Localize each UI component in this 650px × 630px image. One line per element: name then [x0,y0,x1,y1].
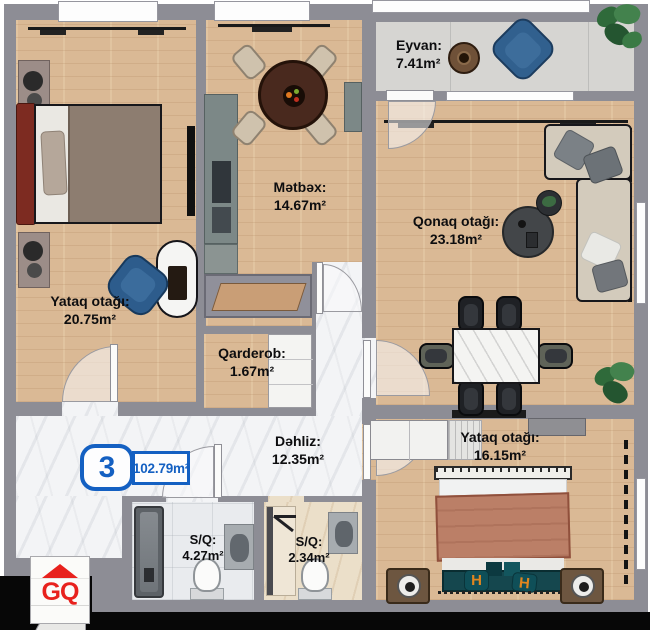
room-area: 2.34m² [264,550,354,566]
bathroom-1-toilet [188,558,226,600]
room-name: Qonaq otağı: [384,212,528,230]
bed-fringe [438,591,568,594]
bathroom-2-door-opening [268,496,304,502]
bedroom-1-door-opening [62,402,118,416]
balcony-seam [588,22,589,91]
appliance-icon [212,161,231,203]
room-area: 16.15m² [428,446,572,464]
lamp-dot [405,582,415,592]
fruit-dot [286,92,292,98]
balcony-rail-window [372,0,590,13]
living-right-window [636,202,646,304]
room-name: Dəhliz: [236,432,360,450]
room-area: 14.67m² [238,196,362,214]
living-plant-icon [592,362,638,410]
kitchen-counter-right [344,82,362,132]
kitchen-hall-door-leaf [316,262,323,314]
room-name: S/Q: [158,532,248,548]
room-name: Yataq otağı: [428,428,572,446]
cabinet-divider [409,421,410,461]
bed-pillow [40,130,67,195]
living-door-leaf [363,340,371,398]
room-name: Mətbəx: [238,178,362,196]
dining-chair [537,343,573,369]
room-label-living: Qonaq otağı: 23.18m² [384,212,528,248]
living-balcony-window [446,91,574,101]
entry-hall-floor [16,496,122,558]
unit-number: 3 [80,444,134,491]
bedroom-2-bed: H H [434,466,572,594]
room-area: 4.27m² [158,548,248,564]
outside-area-bottom-strip [92,612,650,630]
bedroom-1-curtain-2 [138,30,164,35]
balcony-door-leaf [386,90,434,101]
table-lamp-icon [571,574,595,598]
bedroom-2-nightstand-left [386,568,430,604]
dining-chair [458,380,484,416]
room-area: 1.67m² [192,362,312,380]
bed-blanket [68,106,160,222]
unit-total-area: 102.79m² [132,451,190,485]
bedroom-1-window [58,1,158,22]
room-label-hallway: Dəhliz: 12.35m² [236,432,360,468]
bedroom-1-nightstand-bottom [18,232,50,288]
room-label-bedroom-2: Yataq otağı: 16.15m² [428,428,572,464]
room-name: Eyvan: [396,36,472,54]
bedroom-1-curtain [40,30,66,35]
gq-logo-roof-icon [42,564,78,578]
cabinet-divider [269,384,313,385]
table-lamp-icon [23,71,43,91]
fruit-bowl-icon [283,85,305,107]
table-lamp-icon [397,574,421,598]
armchair-seat [502,29,544,71]
room-name: Qarderob: [192,344,312,362]
fruit-dot [294,89,299,94]
bed-blanket [435,492,571,561]
tub-item [144,568,154,582]
bedroom-2-right-curtain [624,434,628,584]
dining-table [452,328,540,384]
bed-headboard [16,103,36,225]
appliance-icon [212,207,231,233]
room-area: 7.41m² [396,54,472,72]
room-label-balcony: Eyvan: 7.41m² [396,36,472,72]
wall-tv-icon [187,126,195,216]
kitchen-counter-left [204,94,238,244]
room-label-bedroom-1: Yataq otağı: 20.75m² [10,292,170,328]
gq-logo-text: GQ [31,578,89,606]
room-name: S/Q: [264,534,354,550]
lamp-dot [579,582,589,592]
room-label-bathroom-1: S/Q: 4.27m² [158,532,248,564]
unit-badge: 102.79m² 3 [80,444,192,492]
room-label-wardrobe: Qarderob: 1.67m² [192,344,312,380]
room-label-bathroom-2: S/Q: 2.34m² [264,534,354,566]
floor-plan-canvas: H H Yataq otağı: 20.75m² [0,0,650,630]
kitchen-counter-left-lower [204,244,238,274]
entrance-door: GQ [30,556,90,624]
table-lamp-icon [23,241,43,261]
bedroom-2-right-window [636,478,646,570]
bedroom-2-nightstand-right [560,568,604,604]
console-decor [168,266,187,300]
fruit-dot [294,97,299,102]
dining-chair [496,296,522,332]
leaf [542,196,556,207]
bed-headboard [434,466,572,480]
bedroom-1-bed [16,103,162,225]
room-area: 20.75m² [10,310,170,328]
bedroom-1-door-leaf [110,344,118,402]
dining-chair [496,380,522,416]
dining-chair [458,296,484,332]
bed-bench [442,570,564,592]
table-lamp-icon [27,263,42,278]
dining-chair [419,343,455,369]
kitchen-round-table [258,60,328,130]
room-label-kitchen: Mətbəx: 14.67m² [238,178,362,214]
mirror-glass [211,283,306,311]
room-name: Yataq otağı: [10,292,170,310]
kitchen-curtain [252,27,292,32]
monogram-pillow: H [464,570,489,591]
balcony-plant-icon [594,4,644,56]
bathroom-1-door-leaf [214,444,222,498]
kitchen-window [214,1,310,21]
room-area: 12.35m² [236,450,360,468]
room-area: 23.18m² [384,230,528,248]
kitchen-console-mirror [204,274,312,318]
side-table-plant [536,190,562,216]
